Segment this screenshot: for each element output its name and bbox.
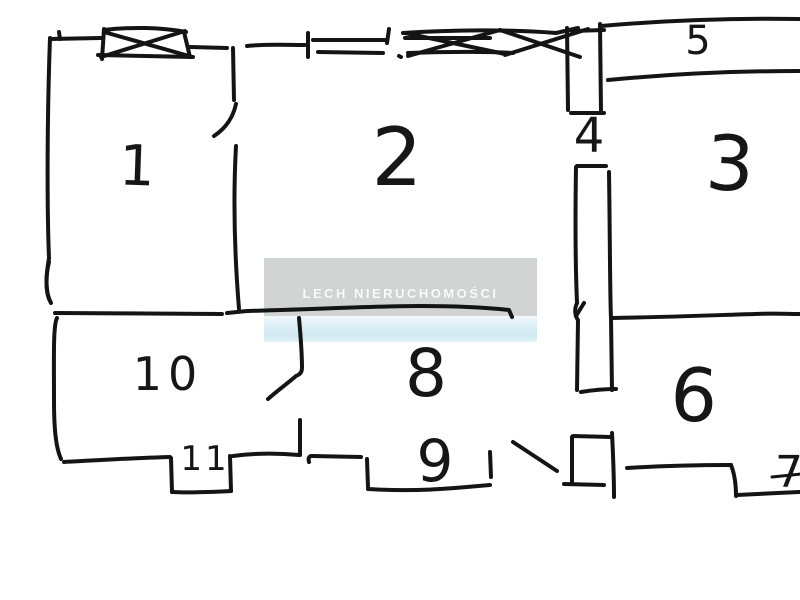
wall-chimney-room4-top [567, 24, 604, 113]
crossed-window-icon-left [98, 28, 193, 59]
door-swing-icon-room10 [268, 376, 296, 399]
wall-top-mid-left [190, 45, 305, 48]
room-8-label: 8 [405, 341, 447, 407]
wall-divider-room1-room2 [235, 146, 239, 309]
room-10-label: 10 [133, 351, 204, 397]
room-6-label: 6 [668, 357, 720, 434]
floor-plan-canvas: LECH NIERUCHOMOŚCI [0, 0, 800, 600]
door-swing-icon-hall [513, 442, 557, 471]
wall-room6-room7 [627, 465, 799, 496]
room-1-label: 1 [118, 138, 156, 195]
wall-divider-room10-room8 [298, 318, 302, 455]
room-4-label: 4 [574, 112, 605, 160]
wall-room3-bottom [612, 314, 799, 318]
door-swing-icon-room1 [214, 48, 236, 136]
double-line-window-icon [308, 29, 401, 57]
room-11-label: 11 [180, 442, 229, 476]
wall-corridor-double [575, 166, 616, 392]
room-3-label: 3 [704, 125, 756, 203]
room-7-label: 7 [775, 451, 800, 495]
room-5-label: 5 [685, 21, 710, 61]
floor-plan-drawing [0, 0, 800, 600]
outer-wall-left [47, 38, 52, 303]
room-2-label: 2 [372, 118, 423, 198]
room-9-label: 9 [417, 432, 454, 490]
wall-top-left [50, 32, 101, 39]
crossed-window-icon-mid [403, 28, 588, 57]
wc-box [564, 433, 614, 497]
wall-room9 [309, 452, 491, 490]
wall-mid-horizontal [55, 306, 512, 317]
